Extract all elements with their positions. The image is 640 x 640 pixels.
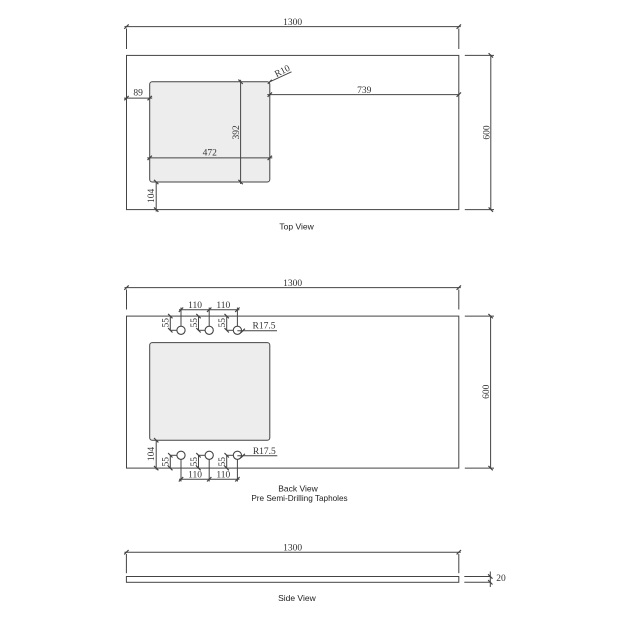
svg-text:1300: 1300 [283, 544, 302, 554]
svg-text:600: 600 [482, 384, 492, 399]
svg-text:55: 55 [162, 318, 172, 328]
svg-text:392: 392 [232, 125, 242, 140]
svg-text:Pre Semi-Drilling Tapholes: Pre Semi-Drilling Tapholes [251, 494, 347, 503]
svg-text:110: 110 [216, 471, 230, 481]
svg-text:110: 110 [188, 301, 202, 311]
svg-text:20: 20 [496, 574, 506, 584]
svg-text:104: 104 [147, 447, 157, 462]
svg-text:110: 110 [216, 301, 230, 311]
svg-text:Side View: Side View [278, 593, 317, 603]
svg-text:55: 55 [218, 318, 228, 328]
svg-text:R17.5: R17.5 [253, 447, 276, 457]
svg-text:1300: 1300 [283, 279, 302, 289]
svg-text:89: 89 [133, 89, 143, 99]
svg-text:600: 600 [482, 125, 492, 140]
svg-text:104: 104 [147, 189, 157, 204]
svg-text:Back View: Back View [278, 484, 318, 494]
svg-text:55: 55 [190, 318, 200, 328]
svg-text:472: 472 [203, 149, 218, 159]
svg-text:1300: 1300 [283, 18, 302, 28]
svg-text:55: 55 [218, 457, 228, 467]
svg-text:R17.5: R17.5 [253, 321, 276, 331]
svg-text:110: 110 [188, 471, 202, 481]
svg-text:55: 55 [162, 457, 172, 467]
svg-text:55: 55 [190, 457, 200, 467]
svg-text:739: 739 [357, 86, 372, 96]
svg-text:Top View: Top View [279, 221, 314, 231]
